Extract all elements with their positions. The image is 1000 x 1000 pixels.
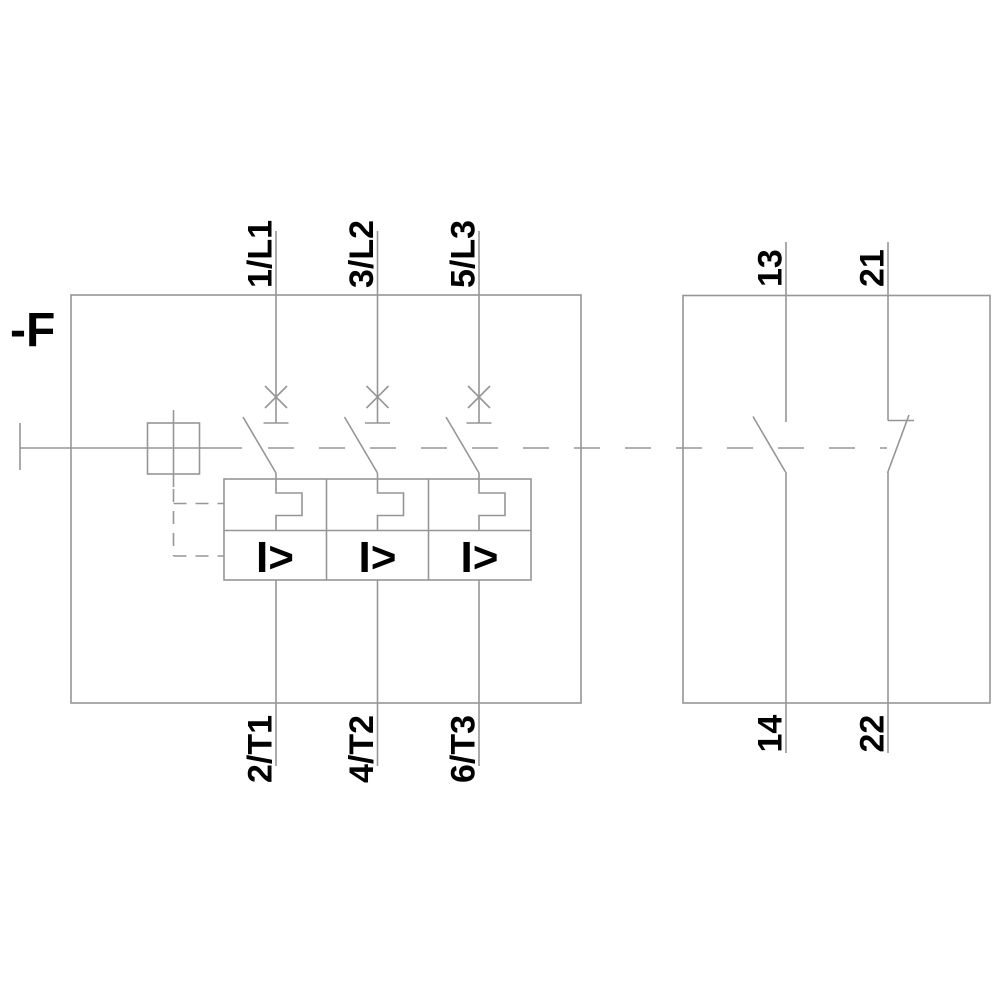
manual-operator (20, 410, 242, 556)
load-terminal-label: 4/T2 (343, 715, 381, 783)
switch-blade (446, 417, 479, 473)
load-terminal-label: 6/T3 (445, 715, 483, 783)
aux-no-contact: 13 14 (752, 242, 790, 753)
load-terminal-label: 2/T1 (242, 715, 280, 783)
thermal-overload-element (276, 479, 302, 531)
pole-2: 3/L2 I> 4/T2 (343, 220, 404, 783)
supply-terminal-label: 3/L2 (343, 220, 381, 288)
schematic-canvas: -F 1/L1 I> 2/T1 3/L2 (0, 0, 1000, 1000)
thermal-overload-element (479, 479, 505, 531)
aux-contact-outline (683, 296, 990, 704)
nc-contact-blade (888, 415, 910, 473)
no-contact-top-label: 13 (752, 249, 790, 287)
switch-blade (243, 417, 276, 473)
magnetic-trip-label: I> (461, 533, 499, 582)
wiring-diagram: -F 1/L1 I> 2/T1 3/L2 (0, 0, 1000, 1000)
thermal-overload-element (378, 479, 404, 531)
supply-terminal-label: 5/L3 (445, 220, 483, 288)
no-contact-bottom-label: 14 (752, 715, 790, 753)
device-designation-label: -F (10, 304, 55, 357)
pole-3: 5/L3 I> 6/T3 (445, 220, 506, 783)
pole-1: 1/L1 I> 2/T1 (242, 220, 303, 783)
magnetic-trip-label: I> (359, 533, 397, 582)
nc-contact-bottom-label: 22 (854, 715, 892, 753)
aux-nc-contact: 21 22 (854, 242, 915, 753)
nc-contact-top-label: 21 (854, 249, 892, 287)
switch-blade (345, 417, 378, 473)
supply-terminal-label: 1/L1 (242, 220, 280, 288)
no-contact-blade (753, 417, 786, 473)
magnetic-trip-label: I> (256, 533, 294, 582)
